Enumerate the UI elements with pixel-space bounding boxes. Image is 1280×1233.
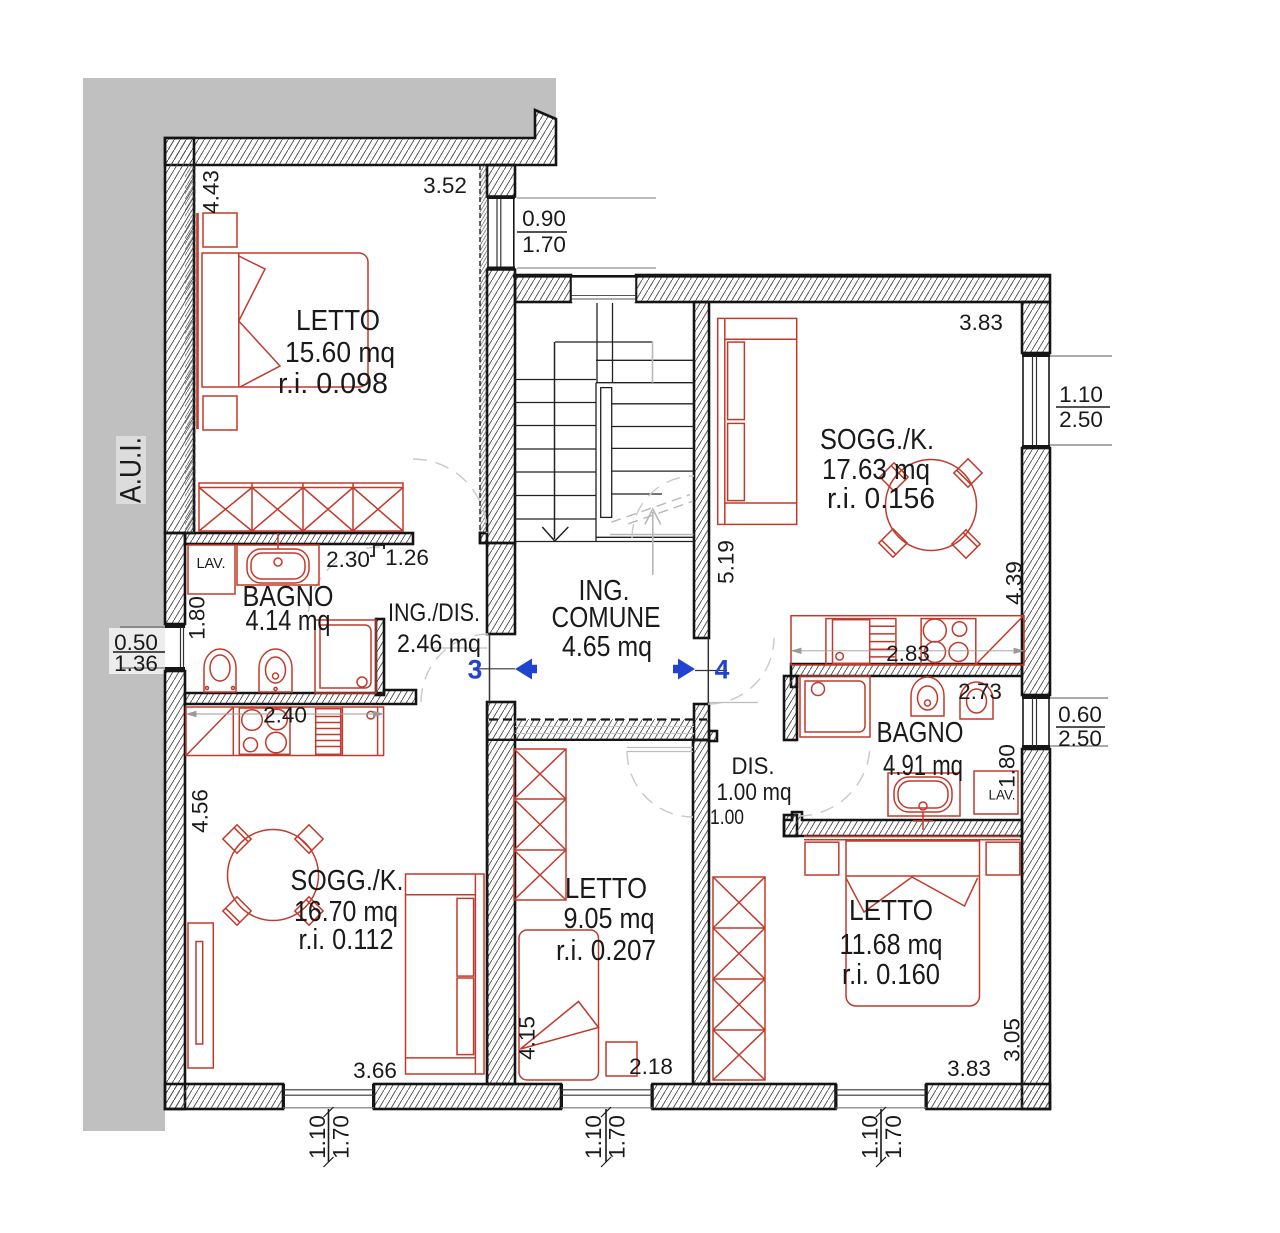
svg-text:17.63 mq: 17.63 mq — [822, 454, 930, 486]
svg-text:LETTO: LETTO — [565, 873, 647, 905]
svg-text:LETTO: LETTO — [296, 305, 380, 337]
svg-text:2.50: 2.50 — [1058, 726, 1102, 751]
svg-text:1.10: 1.10 — [858, 1115, 883, 1159]
svg-text:1.26: 1.26 — [385, 545, 429, 570]
svg-text:2.83: 2.83 — [886, 641, 930, 666]
svg-text:r.i. 0.160: r.i. 0.160 — [842, 959, 940, 991]
svg-text:2.50: 2.50 — [1059, 407, 1103, 432]
svg-text:SOGG./K.: SOGG./K. — [291, 865, 404, 897]
svg-text:SOGG./K.: SOGG./K. — [820, 424, 934, 456]
svg-text:4.91 mq: 4.91 mq — [883, 750, 963, 782]
svg-text:LETTO: LETTO — [849, 895, 933, 927]
svg-text:3: 3 — [468, 655, 483, 685]
svg-text:1.70: 1.70 — [329, 1115, 354, 1159]
svg-text:1.70: 1.70 — [605, 1115, 630, 1159]
svg-text:r.i. 0.207: r.i. 0.207 — [556, 935, 656, 967]
svg-text:4.65 mq: 4.65 mq — [562, 631, 652, 663]
svg-text:0.60: 0.60 — [1058, 702, 1102, 727]
svg-text:3.83: 3.83 — [959, 310, 1003, 335]
svg-text:1.80: 1.80 — [185, 596, 210, 640]
svg-text:ING./DIS.: ING./DIS. — [388, 599, 480, 627]
svg-text:COMUNE: COMUNE — [552, 602, 661, 634]
svg-text:1.70: 1.70 — [881, 1115, 906, 1159]
svg-text:1.10: 1.10 — [305, 1115, 330, 1159]
svg-text:3.83: 3.83 — [947, 1056, 991, 1081]
svg-text:4: 4 — [715, 655, 730, 685]
svg-text:4.15: 4.15 — [515, 1016, 540, 1060]
svg-text:4.14 mq: 4.14 mq — [246, 605, 331, 637]
svg-text:4.39: 4.39 — [1002, 561, 1027, 605]
svg-text:LAV.: LAV. — [988, 788, 1015, 803]
svg-text:BAGNO: BAGNO — [877, 717, 964, 749]
svg-text:1.10: 1.10 — [581, 1115, 606, 1159]
svg-text:LAV.: LAV. — [196, 556, 225, 572]
svg-text:2.30: 2.30 — [326, 547, 370, 572]
svg-text:4.56: 4.56 — [188, 789, 213, 833]
svg-text:3.52: 3.52 — [423, 173, 467, 198]
svg-text:1.70: 1.70 — [522, 232, 566, 257]
svg-text:2.73: 2.73 — [958, 679, 1002, 704]
svg-text:2.18: 2.18 — [629, 1054, 673, 1079]
svg-text:1.00 mq: 1.00 mq — [717, 779, 792, 806]
svg-text:3.66: 3.66 — [353, 1058, 397, 1083]
svg-text:1.00: 1.00 — [710, 806, 744, 829]
svg-text:A.U.I.: A.U.I. — [115, 437, 148, 503]
svg-text:11.68 mq: 11.68 mq — [840, 929, 943, 961]
svg-text:DIS.: DIS. — [732, 753, 775, 780]
svg-text:0.90: 0.90 — [522, 206, 566, 231]
svg-text:4.43: 4.43 — [199, 170, 224, 214]
svg-text:r.i. 0.112: r.i. 0.112 — [299, 924, 394, 956]
svg-text:r.i. 0.098: r.i. 0.098 — [278, 368, 388, 400]
svg-text:15.60 mq: 15.60 mq — [285, 337, 395, 369]
svg-text:3.05: 3.05 — [1000, 1018, 1025, 1062]
svg-text:1.36: 1.36 — [114, 651, 158, 676]
svg-text:1.80: 1.80 — [995, 744, 1020, 788]
svg-text:2.40: 2.40 — [263, 703, 307, 728]
svg-text:5.19: 5.19 — [714, 540, 739, 584]
svg-text:9.05 mq: 9.05 mq — [564, 903, 655, 935]
svg-text:r.i. 0.156: r.i. 0.156 — [827, 483, 935, 515]
svg-text:1.10: 1.10 — [1059, 382, 1103, 407]
